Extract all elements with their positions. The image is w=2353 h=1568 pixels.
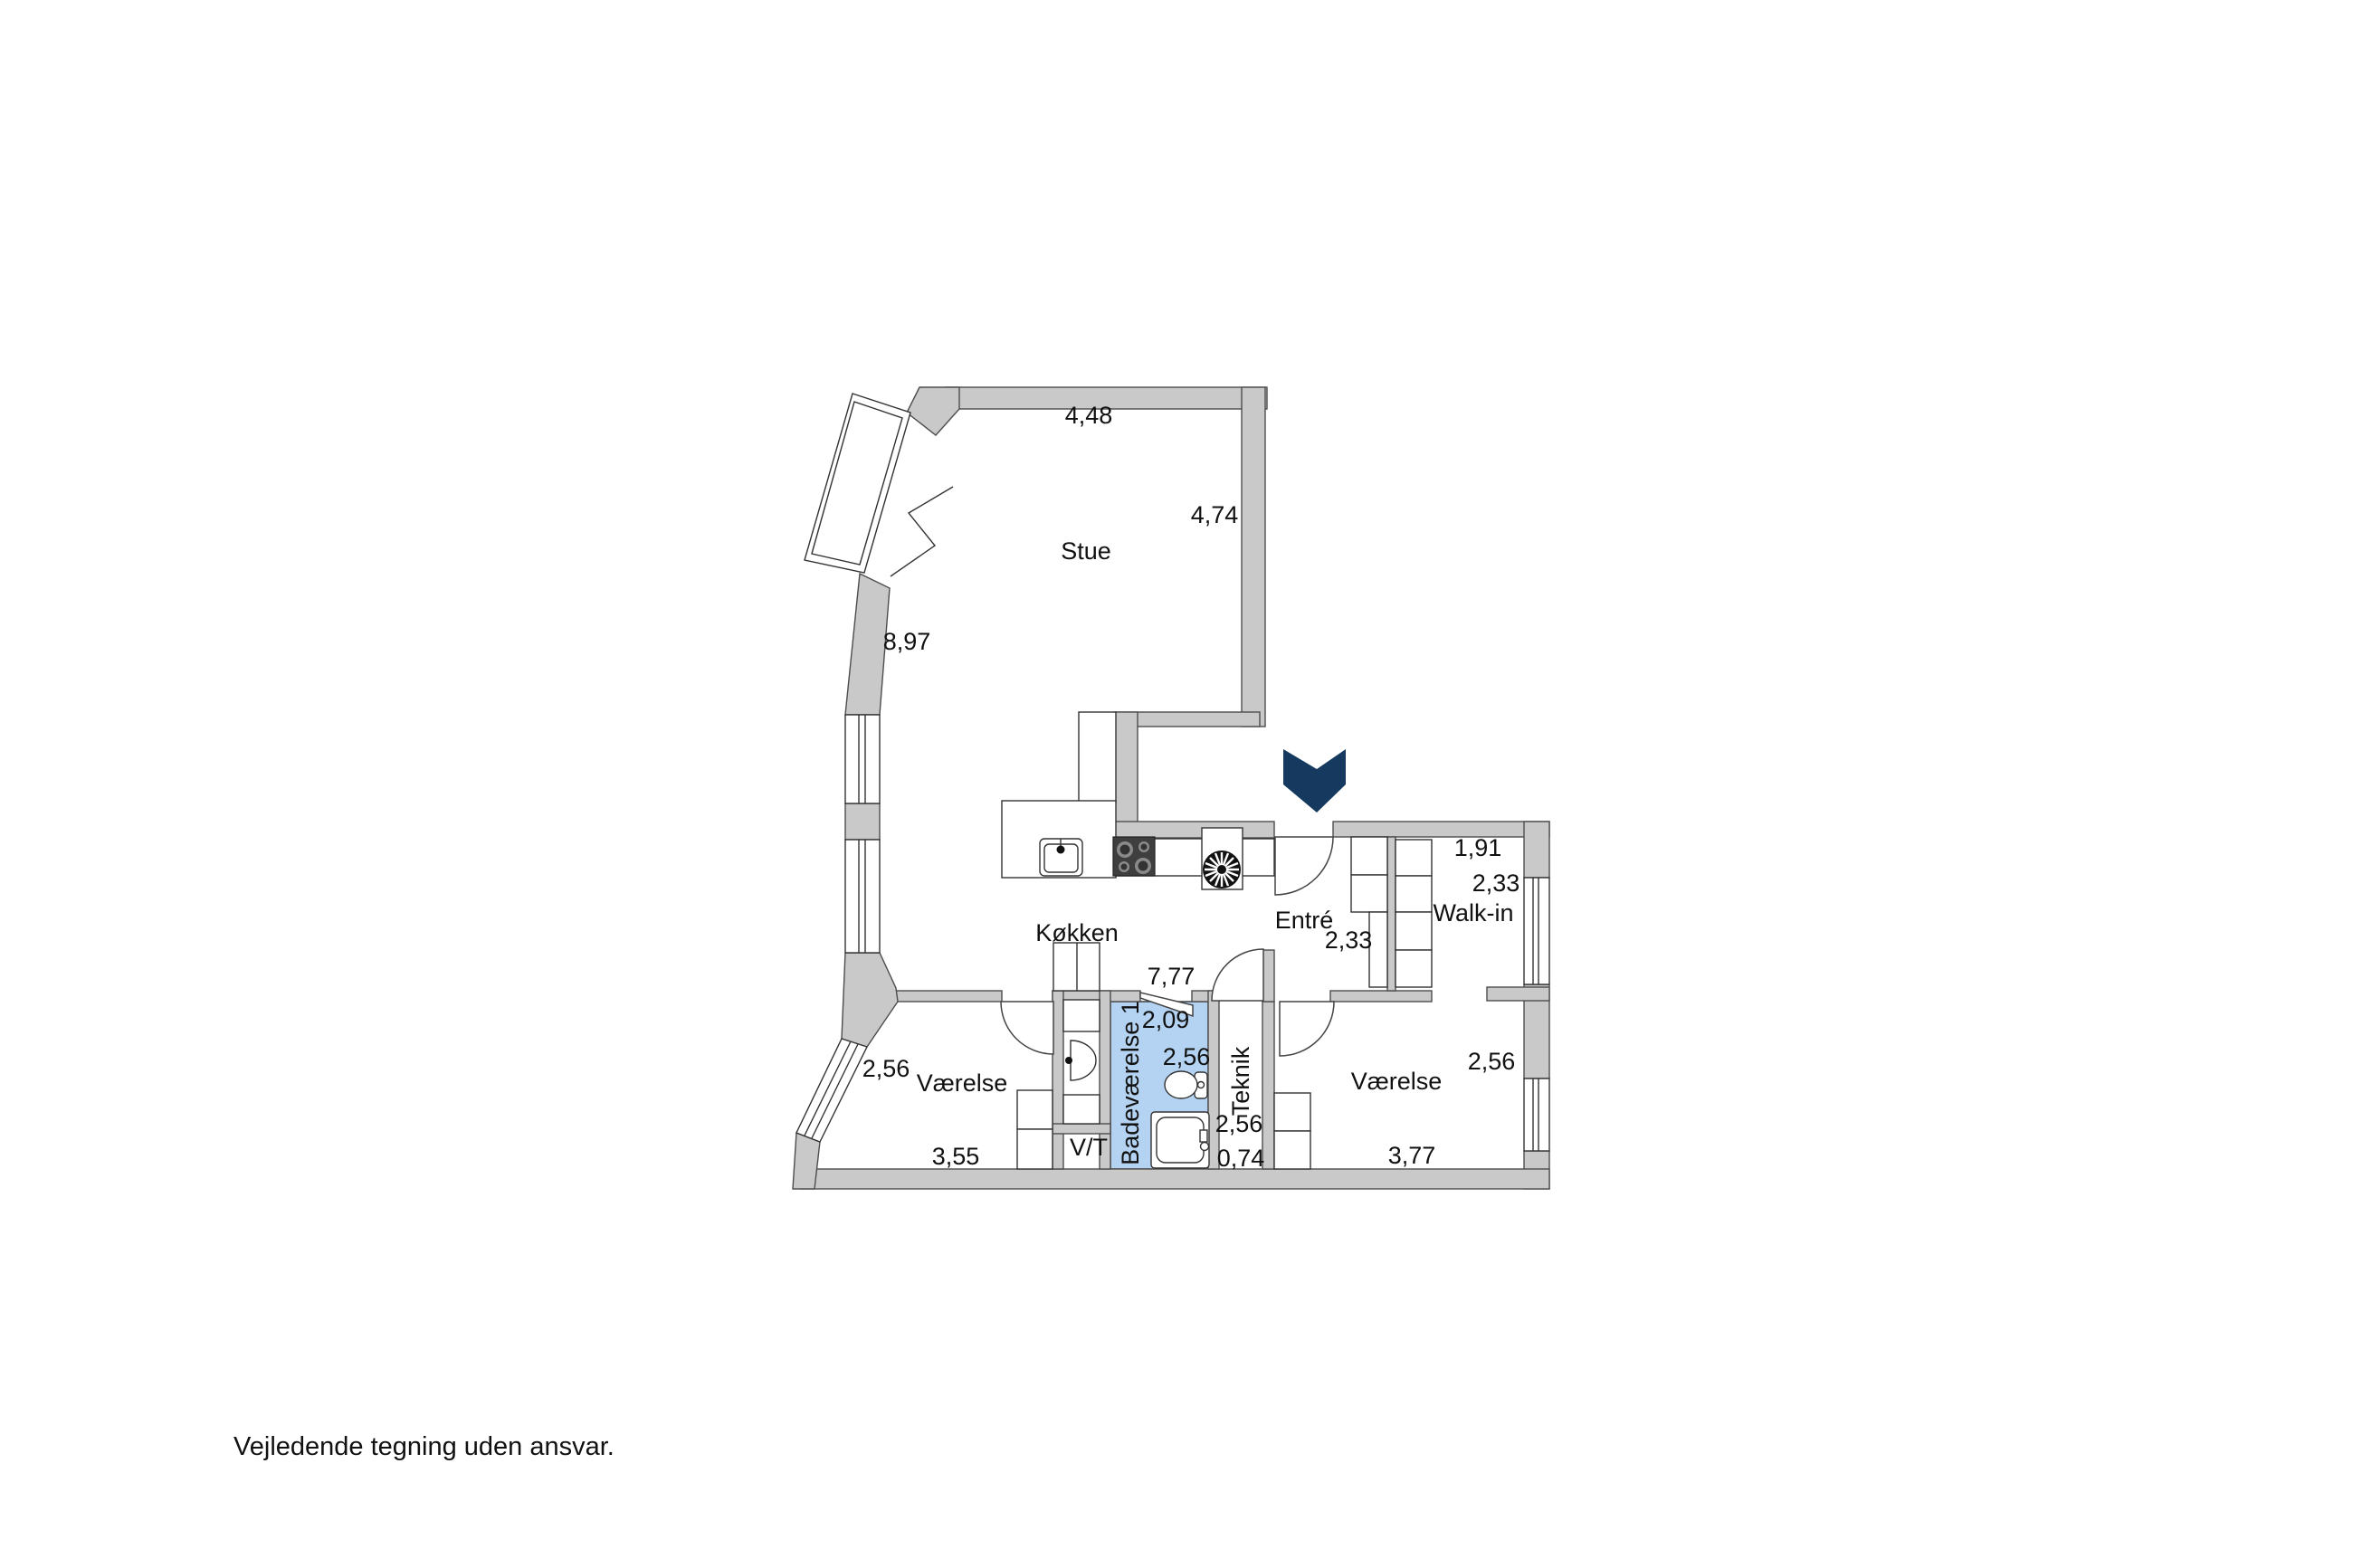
wall-segment <box>845 803 880 840</box>
dimension-label: 2,56 <box>1215 1110 1263 1137</box>
wall-segment <box>1487 987 1549 1001</box>
wall-segment <box>1387 837 1396 991</box>
wall-segment <box>1053 1124 1110 1134</box>
wall-segment <box>1262 950 1274 1002</box>
dimension-label: 2,56 <box>1163 1043 1211 1070</box>
wall-segment <box>907 387 959 435</box>
dimension-label: 1,91 <box>1454 834 1502 861</box>
walkin-closet <box>1396 950 1432 987</box>
stove-icon <box>1113 837 1155 876</box>
hand-basin-icon <box>1065 1041 1096 1080</box>
door-swing <box>1001 1002 1053 1054</box>
entre-closet <box>1351 837 1387 875</box>
window <box>1524 1079 1549 1151</box>
dimension-label: 2,09 <box>1142 1006 1190 1033</box>
room-label-vaerelse-right: Værelse <box>1351 1068 1443 1095</box>
door-swing <box>1212 949 1263 1001</box>
dimension-label: 2,33 <box>1325 927 1373 954</box>
dimension-label: 0,74 <box>1217 1145 1265 1172</box>
wall-segment <box>1333 822 1549 837</box>
wardrobe <box>1274 1131 1310 1169</box>
room-label-vt: V/T <box>1070 1134 1108 1161</box>
room-label-teknik: Teknik <box>1227 1046 1254 1116</box>
window <box>845 715 880 803</box>
wall-segment <box>1330 991 1432 1002</box>
room-label-vaerelse-left: Værelse <box>917 1069 1008 1097</box>
vt-cabinet <box>1063 1095 1100 1124</box>
entre-closet <box>1351 875 1387 912</box>
floorplan-page: { "footer": { "disclaimer": "Vejledende … <box>0 0 2353 1568</box>
dimension-label: 3,55 <box>932 1143 980 1170</box>
window <box>1524 878 1549 984</box>
entrance-arrow-icon <box>1283 749 1346 813</box>
wardrobe <box>1274 1093 1310 1131</box>
walkin-closet <box>1396 912 1432 950</box>
dimension-label: 2,56 <box>862 1055 910 1082</box>
vt-cabinet <box>1063 1000 1100 1031</box>
wall-segment <box>1053 991 1063 1169</box>
wall-segment <box>1115 712 1138 839</box>
wardrobe <box>1017 1129 1053 1169</box>
wall-segment <box>842 953 898 1047</box>
wall-segment <box>1208 991 1219 1169</box>
window-angled <box>796 1039 867 1142</box>
open-balcony-door-line <box>891 487 953 576</box>
toilet-icon <box>1165 1071 1207 1098</box>
dimension-label: 7,77 <box>1148 963 1196 990</box>
dimension-label: 4,74 <box>1191 501 1239 528</box>
room-label-walkin: Walk-in <box>1433 899 1513 927</box>
dimension-label: 4,48 <box>1065 402 1113 429</box>
wall-segment <box>1115 822 1274 838</box>
window <box>845 840 880 953</box>
wall-segment <box>793 1133 820 1189</box>
kitchen-tall-cabinet <box>1079 712 1116 803</box>
dimension-label: 2,56 <box>1468 1048 1516 1075</box>
dimension-label: 2,33 <box>1472 870 1520 897</box>
walkin-closet <box>1396 840 1432 876</box>
kitchen-sink-icon <box>1040 839 1082 876</box>
dimension-label: 3,77 <box>1388 1142 1436 1169</box>
wall-segment <box>1242 387 1265 727</box>
room-label-stue: Stue <box>1061 537 1111 565</box>
wall-segment <box>800 1169 1549 1189</box>
dimension-label: 8,97 <box>883 628 931 655</box>
room-label-badevaerelse: Badeværelse 1 <box>1117 1001 1144 1165</box>
walkin-closet <box>1396 876 1432 912</box>
wall-segment <box>1524 822 1549 878</box>
extractor-fan-icon <box>1202 828 1243 889</box>
wardrobe <box>1017 1090 1053 1129</box>
shower-icon <box>1151 1112 1209 1168</box>
door-swing <box>1280 1002 1334 1056</box>
room-labels: Stue 4,48 4,74 8,97 Køkken 7,77 Entré 2,… <box>862 402 1520 1172</box>
entrance-door-swing <box>1275 837 1333 895</box>
kitchen-cabinet <box>1053 943 1100 991</box>
footer-disclaimer: Vejledende tegning uden ansvar. <box>233 1432 614 1461</box>
floorplan-drawing: Stue 4,48 4,74 8,97 Køkken 7,77 Entré 2,… <box>0 0 2353 1568</box>
room-label-kokken: Køkken <box>1035 919 1119 946</box>
